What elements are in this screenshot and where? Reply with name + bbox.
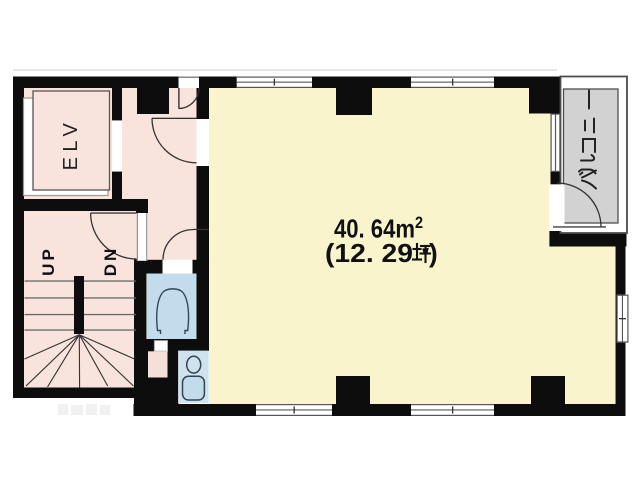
svg-text:): ) — [429, 238, 438, 268]
svg-text:(12. 29: (12. 29 — [325, 238, 413, 268]
svg-text:UP: UP — [39, 246, 58, 276]
svg-text:ELV: ELV — [60, 118, 82, 171]
svg-text:DN: DN — [101, 246, 120, 277]
